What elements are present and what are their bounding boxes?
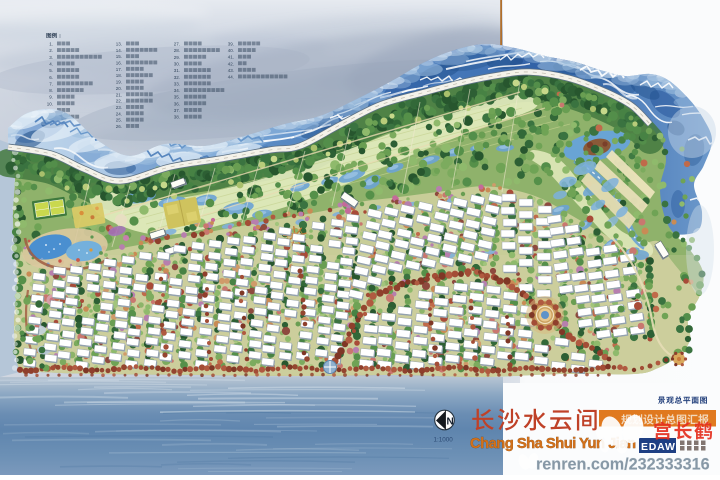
- svg-text:EDAW: EDAW: [641, 441, 676, 453]
- svg-text:2.: 2.: [49, 48, 53, 53]
- svg-text:22.: 22.: [116, 99, 122, 104]
- svg-text:3.: 3.: [49, 55, 53, 60]
- svg-text:6.: 6.: [49, 75, 53, 80]
- svg-text:1.: 1.: [49, 42, 53, 47]
- svg-text:7.: 7.: [49, 81, 53, 86]
- svg-text:32.: 32.: [174, 75, 180, 80]
- svg-text:43.: 43.: [228, 68, 234, 73]
- svg-text:24.: 24.: [116, 111, 122, 116]
- svg-text:18.: 18.: [116, 73, 122, 78]
- svg-text:14.: 14.: [116, 48, 122, 53]
- svg-text:9.: 9.: [49, 95, 53, 100]
- svg-text:26.: 26.: [116, 124, 122, 129]
- svg-text:15.: 15.: [116, 54, 122, 59]
- svg-text:8.: 8.: [49, 88, 53, 93]
- svg-text:N: N: [447, 417, 454, 428]
- svg-text:19.: 19.: [116, 80, 122, 85]
- svg-text:27.: 27.: [174, 42, 180, 47]
- svg-text:23.: 23.: [116, 105, 122, 110]
- svg-text:5.: 5.: [49, 68, 53, 73]
- svg-text:28.: 28.: [174, 48, 180, 53]
- svg-text:36.: 36.: [174, 101, 180, 106]
- svg-text:1:1000: 1:1000: [434, 437, 454, 444]
- svg-text:44.: 44.: [228, 75, 234, 80]
- svg-text:31.: 31.: [174, 68, 180, 73]
- svg-text:37.: 37.: [174, 108, 180, 113]
- svg-text:38.: 38.: [174, 115, 180, 120]
- svg-text:17.: 17.: [116, 67, 122, 72]
- svg-text:4.: 4.: [49, 62, 53, 67]
- svg-text:39.: 39.: [228, 42, 234, 47]
- svg-text:25.: 25.: [116, 118, 122, 123]
- svg-text:33.: 33.: [174, 81, 180, 86]
- svg-text:34.: 34.: [174, 88, 180, 93]
- svg-text:29.: 29.: [174, 55, 180, 60]
- svg-text:20.: 20.: [116, 86, 122, 91]
- svg-text:30.: 30.: [174, 62, 180, 67]
- svg-text:10.: 10.: [47, 101, 53, 106]
- svg-text:35.: 35.: [174, 95, 180, 100]
- svg-text:41.: 41.: [228, 55, 234, 60]
- svg-text:40.: 40.: [228, 48, 234, 53]
- svg-text:42.: 42.: [228, 61, 234, 66]
- svg-text:21.: 21.: [116, 92, 122, 97]
- svg-text:13.: 13.: [116, 42, 122, 47]
- svg-text:renren.com/232333316: renren.com/232333316: [536, 456, 710, 474]
- svg-text:16.: 16.: [116, 61, 122, 66]
